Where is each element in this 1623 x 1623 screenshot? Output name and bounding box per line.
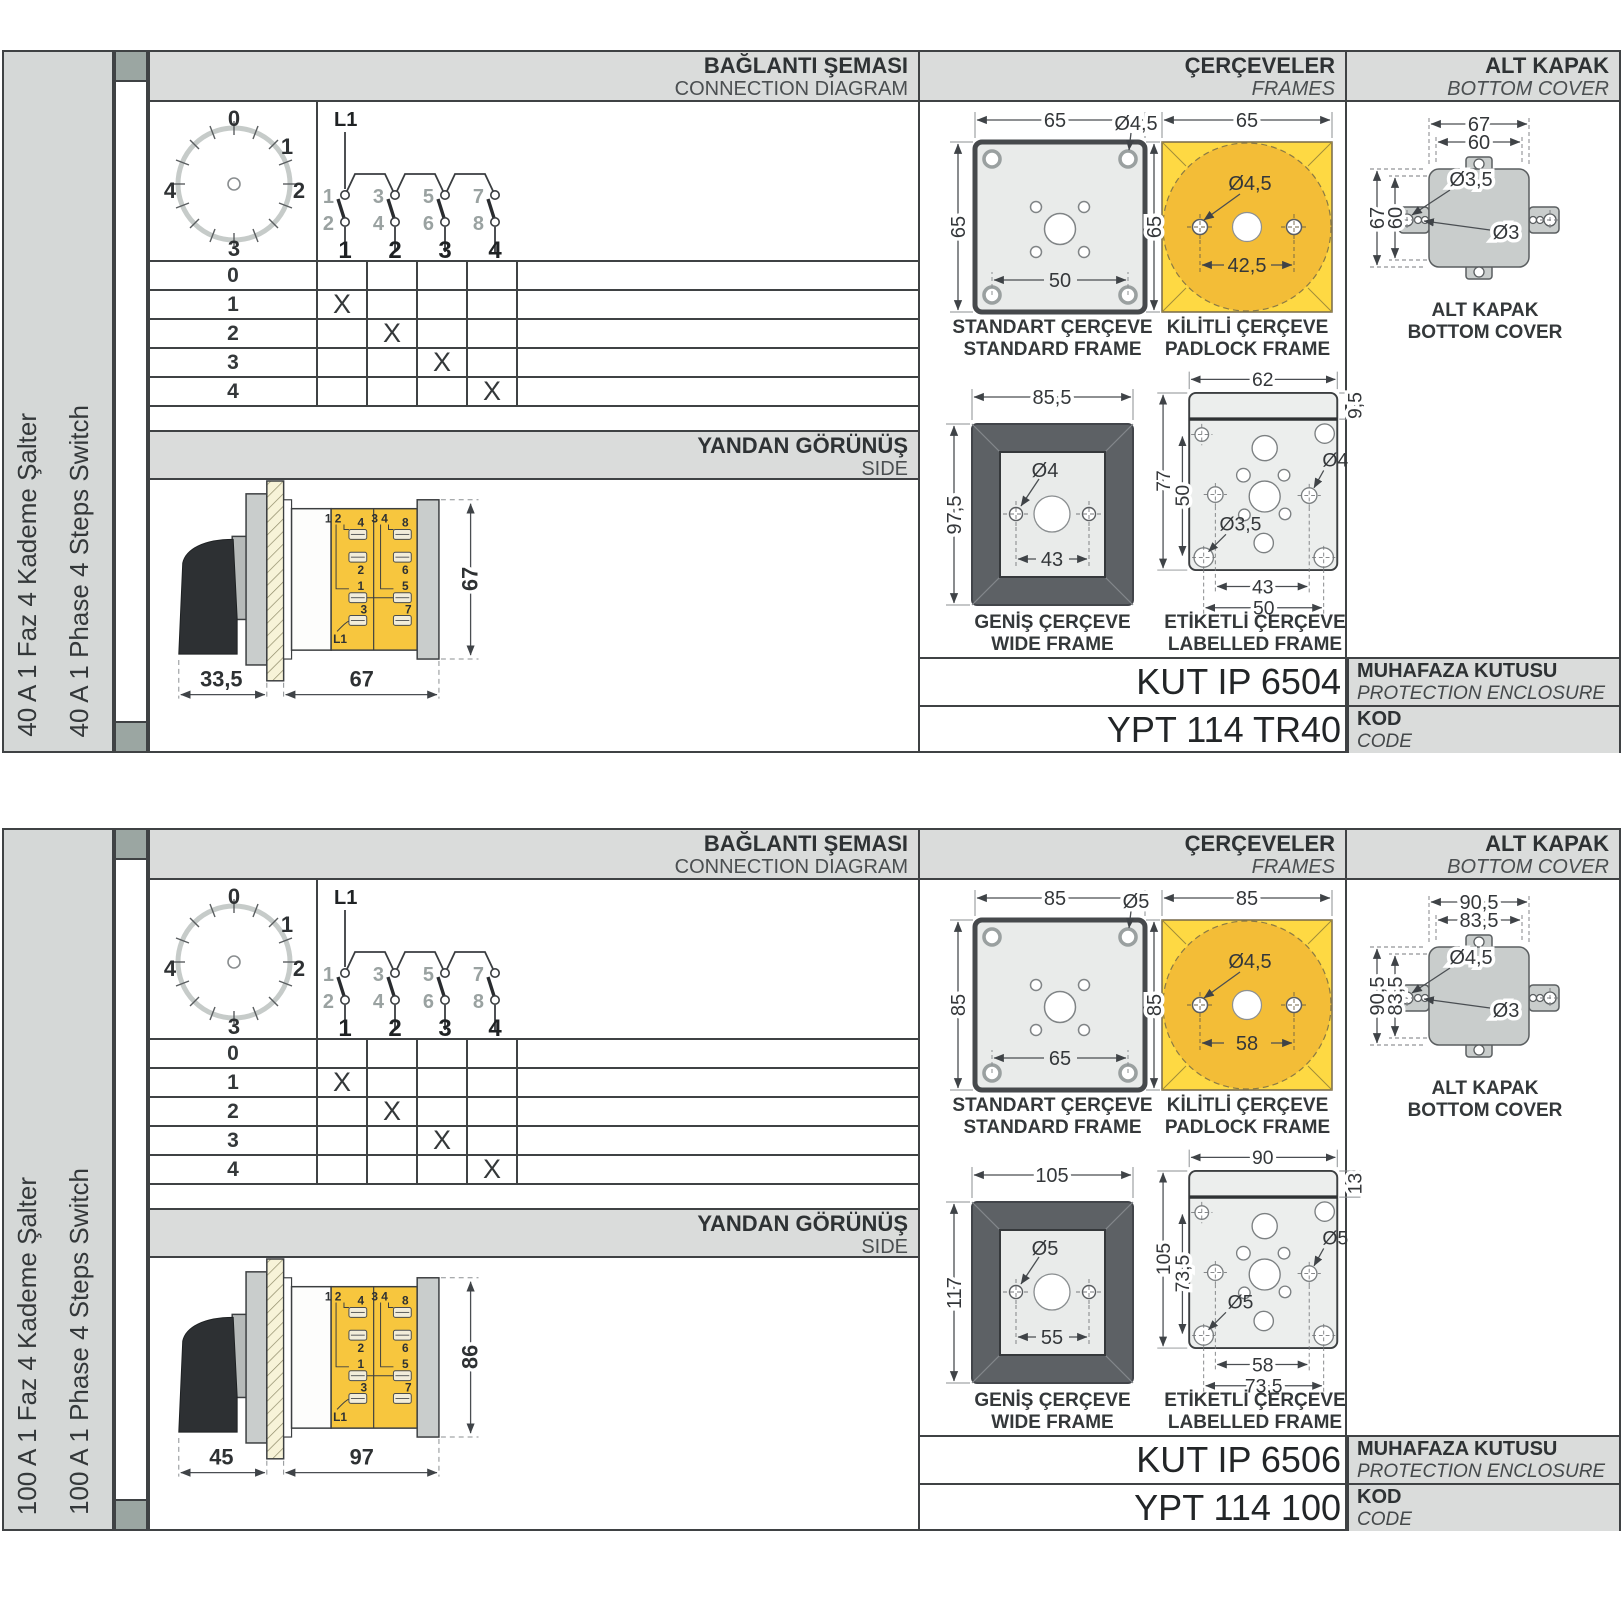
table-cell: X xyxy=(418,1127,468,1156)
terminal-4: 4 xyxy=(488,237,502,260)
table-cell xyxy=(318,349,368,378)
dim-standard-width: 85 xyxy=(1044,888,1066,910)
terminal-5-label: 5 xyxy=(402,579,409,593)
contact-3: 3 xyxy=(373,186,384,208)
table-cell: X xyxy=(318,1069,368,1098)
bottom-cover-label-en: BOTTOM COVER xyxy=(1347,322,1623,344)
table-cell-empty xyxy=(518,1127,920,1156)
dim-labelled-hole-left: Ø3,5 xyxy=(1220,513,1262,535)
table-cell xyxy=(468,291,518,320)
dim-cover-height2: 60 xyxy=(1385,207,1407,229)
terminal-3: 3 xyxy=(438,1015,451,1038)
table-cell xyxy=(318,378,368,407)
dim-labelled-hole-right: Ø4 xyxy=(1322,450,1348,472)
header-side-view: YANDAN GÖRÜNÜŞ SIDE xyxy=(150,1208,920,1258)
dim-body-height: 67 xyxy=(458,567,483,591)
header-connection-en: CONNECTION DIAGRAM xyxy=(150,856,908,878)
dim-labelled-height-inner: 73,5 xyxy=(1172,1255,1194,1293)
table-cell-empty xyxy=(518,1156,920,1185)
dim-labelled-width: 90 xyxy=(1252,1147,1274,1169)
dim-body-height: 86 xyxy=(458,1345,483,1369)
enclosure-label-en: PROTECTION ENCLOSURE xyxy=(1357,683,1619,704)
dim-labelled-bottom-inner: 43 xyxy=(1252,576,1274,598)
contact-1: 1 xyxy=(323,964,334,986)
product-code-row: YPT 114 TR40 KOD CODE xyxy=(920,705,1619,753)
dim-standard-height: 65 xyxy=(948,216,970,238)
contact-5: 5 xyxy=(423,964,434,986)
table-cell-empty xyxy=(518,320,920,349)
product-sidebar: 100 A 1 Faz 4 Kademe Şalter 100 A 1 Phas… xyxy=(2,828,114,1531)
dial-position-4: 4 xyxy=(164,956,177,981)
terminal-1: 1 xyxy=(338,237,351,260)
table-row-label: 2 xyxy=(150,320,318,349)
header-frames-tr: ÇERÇEVELER xyxy=(920,54,1335,78)
dim-padlock-width: 65 xyxy=(1236,110,1258,132)
terminal-3: 3 xyxy=(438,237,451,260)
contact-2: 2 xyxy=(323,991,334,1013)
header-frames-en: FRAMES xyxy=(920,78,1335,100)
table-cell xyxy=(318,1127,368,1156)
header-cover-tr: ALT KAPAK xyxy=(1347,54,1609,78)
dim-wide-height: 117 xyxy=(944,1277,966,1309)
table-cell-empty xyxy=(518,1040,920,1069)
supply-label: L1 xyxy=(334,887,357,909)
table-row-label: 4 xyxy=(150,1156,318,1185)
labelled-frame-drawing: 62 9,5 77 50 Ø4 Ø3,5 43 50 xyxy=(1140,362,1370,662)
dim-wide-height: 97,5 xyxy=(944,496,966,535)
terminal-2: 2 xyxy=(388,1015,401,1038)
dim-wide-inner: 43 xyxy=(1041,549,1063,571)
enclosure-label-tr: MUHAFAZA KUTUSU xyxy=(1357,660,1619,683)
terminal-5-label: 5 xyxy=(402,1357,409,1371)
dim-labelled-width: 62 xyxy=(1252,369,1274,391)
sidebar-strip xyxy=(114,828,148,1531)
table-cell xyxy=(318,262,368,291)
header-side-en: SIDE xyxy=(150,458,908,480)
standard-frame-drawing: 85 Ø5 85 65 xyxy=(940,880,1165,1125)
table-cell xyxy=(368,1069,418,1098)
table-cell: X xyxy=(418,349,468,378)
dim-padlock-width: 85 xyxy=(1236,888,1258,910)
header-frames-tr: ÇERÇEVELER xyxy=(920,832,1335,856)
terminal-6-label: 6 xyxy=(402,563,409,577)
table-cell xyxy=(418,1040,468,1069)
dim-cover-hole1: Ø4,5 xyxy=(1449,947,1492,969)
table-cell xyxy=(318,320,368,349)
table-cell xyxy=(318,1098,368,1127)
dial-position-0: 0 xyxy=(228,884,240,909)
table-row-label: 0 xyxy=(150,262,318,291)
dim-standard-height: 85 xyxy=(948,994,970,1016)
terminal-1-label: 1 xyxy=(357,1357,364,1371)
header-connection-en: CONNECTION DIAGRAM xyxy=(150,78,908,100)
dial-position-3: 3 xyxy=(228,236,240,260)
dim-padlock-hole: Ø4,5 xyxy=(1228,951,1271,973)
table-cell xyxy=(368,378,418,407)
table-cell: X xyxy=(368,320,418,349)
product-name-english: 100 A 1 Phase 4 Steps Switch xyxy=(64,1168,95,1515)
dim-cover-height2: 83,5 xyxy=(1385,977,1407,1016)
catalog-page: 40 A 1 Faz 4 Kademe Şalter 40 A 1 Phase … xyxy=(0,0,1623,1623)
dim-wide-inner: 55 xyxy=(1041,1327,1063,1349)
product-name-turkish: 100 A 1 Faz 4 Kademe Şalter xyxy=(12,1177,43,1515)
contact-5: 5 xyxy=(423,186,434,208)
table-row-label: 4 xyxy=(150,378,318,407)
dim-front-depth: 33,5 xyxy=(200,667,242,692)
contact-2: 2 xyxy=(323,213,334,235)
contact-6: 6 xyxy=(423,991,434,1013)
dim-padlock-height: 65 xyxy=(1144,216,1166,238)
padlock-frame-drawing: 85 85 Ø4,5 58 xyxy=(1140,880,1355,1125)
dial-position-4: 4 xyxy=(164,178,177,203)
header-connection-tr: BAĞLANTI ŞEMASI xyxy=(150,832,908,856)
terminal-2-label: 2 xyxy=(357,1341,364,1355)
table-cell xyxy=(418,262,468,291)
table-cell xyxy=(368,291,418,320)
header-side-tr: YANDAN GÖRÜNÜŞ xyxy=(150,1212,908,1236)
header-connection-diagram: BAĞLANTI ŞEMASI CONNECTION DIAGRAM xyxy=(150,52,920,102)
dim-standard-inner: 65 xyxy=(1049,1048,1071,1070)
product-name-turkish: 40 A 1 Faz 4 Kademe Şalter xyxy=(12,413,43,737)
dim-padlock-height: 85 xyxy=(1144,994,1166,1016)
dim-cover-hole1: Ø3,5 xyxy=(1449,169,1492,191)
table-cell xyxy=(418,1098,468,1127)
dim-labelled-bottom-inner: 58 xyxy=(1252,1354,1274,1376)
table-row-label: 1 xyxy=(150,291,318,320)
table-cell xyxy=(418,291,468,320)
wide-frame-drawing: 105 117 Ø5 55 xyxy=(940,1157,1165,1407)
contact-8: 8 xyxy=(473,991,484,1013)
contact-4: 4 xyxy=(373,991,385,1013)
dial-position-0: 0 xyxy=(228,106,240,131)
dim-padlock-hole: Ø4,5 xyxy=(1228,173,1271,195)
table-cell xyxy=(368,1156,418,1185)
strip-marker-bottom xyxy=(116,721,146,751)
terminal-6-label: 6 xyxy=(402,1341,409,1355)
header-connection-tr: BAĞLANTI ŞEMASI xyxy=(150,54,908,78)
table-cell xyxy=(368,1040,418,1069)
header-bottom-cover: ALT KAPAK BOTTOM COVER xyxy=(1347,830,1619,880)
dim-labelled-bottom-outer: 73,5 xyxy=(1245,1376,1283,1398)
sidebar-strip xyxy=(114,50,148,753)
header-cover-en: BOTTOM COVER xyxy=(1347,856,1609,878)
dim-wide-width: 105 xyxy=(1035,1165,1068,1187)
side-view-drawing: 1 2 3 4 4 2 1 3 8 6 5 7 L1 45 97 86 xyxy=(154,1258,896,1532)
table-cell: X xyxy=(318,291,368,320)
header-side-view: YANDAN GÖRÜNÜŞ SIDE xyxy=(150,430,920,480)
table-row-label: 2 xyxy=(150,1098,318,1127)
wide-frame-label-en: WIDE FRAME xyxy=(940,634,1165,656)
terminal-pair-left: 1 2 xyxy=(325,512,342,526)
terminal-1: 1 xyxy=(338,1015,351,1038)
terminal-1-label: 1 xyxy=(357,579,364,593)
code-label-tr: KOD xyxy=(1357,708,1619,731)
contact-4: 4 xyxy=(373,213,385,235)
connection-schematic: L1 1 3 5 7 2 4 6 8 1 2 3 4 xyxy=(318,880,920,1038)
dim-cover-hole2: Ø3 xyxy=(1493,222,1520,244)
dim-cover-hole2: Ø3 xyxy=(1493,1000,1520,1022)
table-cell xyxy=(368,349,418,378)
table-cell xyxy=(418,1069,468,1098)
table-cell xyxy=(468,320,518,349)
table-cell xyxy=(468,262,518,291)
enclosure-code-label: MUHAFAZA KUTUSU PROTECTION ENCLOSURE xyxy=(1347,1437,1619,1483)
switching-table: 0 1 X 2 X 3 X xyxy=(150,260,920,407)
terminal-3-label: 3 xyxy=(360,603,367,617)
dim-labelled-bottom-outer: 50 xyxy=(1253,598,1275,620)
terminal-2-label: 2 xyxy=(357,563,364,577)
product-code: YPT 114 100 xyxy=(920,1485,1347,1531)
terminal-7-label: 7 xyxy=(405,1381,412,1395)
contact-6: 6 xyxy=(423,213,434,235)
product-sidebar: 40 A 1 Faz 4 Kademe Şalter 40 A 1 Phase … xyxy=(2,50,114,753)
dim-labelled-height-inner: 50 xyxy=(1172,485,1194,507)
terminal-pair-left: 1 2 xyxy=(325,1290,342,1304)
product-section-40a: 40 A 1 Faz 4 Kademe Şalter 40 A 1 Phase … xyxy=(0,50,1623,753)
table-cell xyxy=(318,1156,368,1185)
dim-wide-width: 85,5 xyxy=(1033,387,1072,409)
contact-3: 3 xyxy=(373,964,384,986)
contact-8: 8 xyxy=(473,213,484,235)
table-cell: X xyxy=(468,1156,518,1185)
product-code: YPT 114 TR40 xyxy=(920,707,1347,753)
dial-position-2: 2 xyxy=(293,178,305,203)
header-connection-diagram: BAĞLANTI ŞEMASI CONNECTION DIAGRAM xyxy=(150,830,920,880)
table-cell xyxy=(468,1127,518,1156)
dial-position-1: 1 xyxy=(281,134,293,159)
wide-frame-label-en: WIDE FRAME xyxy=(940,1412,1165,1434)
table-cell xyxy=(368,262,418,291)
bottom-cover-label-en: BOTTOM COVER xyxy=(1347,1100,1623,1122)
product-name-english: 40 A 1 Phase 4 Steps Switch xyxy=(64,405,95,737)
enclosure-code: KUT IP 6504 xyxy=(920,659,1347,705)
dim-standard-inner: 50 xyxy=(1049,270,1071,292)
terminal-8-label: 8 xyxy=(402,1293,409,1307)
enclosure-code-row: KUT IP 6504 MUHAFAZA KUTUSU PROTECTION E… xyxy=(920,657,1619,705)
terminal-4-label: 4 xyxy=(357,1293,364,1307)
supply-label: L1 xyxy=(334,109,357,131)
table-cell xyxy=(418,378,468,407)
header-side-tr: YANDAN GÖRÜNÜŞ xyxy=(150,434,908,458)
dim-cover-width2: 83,5 xyxy=(1460,910,1499,932)
header-bottom-cover: ALT KAPAK BOTTOM COVER xyxy=(1347,52,1619,102)
table-cell-empty xyxy=(518,1098,920,1127)
header-cover-tr: ALT KAPAK xyxy=(1347,832,1609,856)
header-side-en: SIDE xyxy=(150,1236,908,1258)
enclosure-code-label: MUHAFAZA KUTUSU PROTECTION ENCLOSURE xyxy=(1347,659,1619,705)
dim-wide-hole: Ø4 xyxy=(1032,460,1059,482)
product-code-row: YPT 114 100 KOD CODE xyxy=(920,1483,1619,1531)
strip-marker-bottom xyxy=(116,1499,146,1529)
table-cell xyxy=(318,1040,368,1069)
header-cover-en: BOTTOM COVER xyxy=(1347,78,1609,100)
dim-labelled-strip: 13 xyxy=(1344,1173,1366,1195)
table-row-label: 0 xyxy=(150,1040,318,1069)
table-cell-empty xyxy=(518,349,920,378)
terminal-7-label: 7 xyxy=(405,603,412,617)
enclosure-code-row: KUT IP 6506 MUHAFAZA KUTUSU PROTECTION E… xyxy=(920,1435,1619,1483)
table-cell-empty xyxy=(518,291,920,320)
standard-frame-drawing: 65 Ø4,5 65 50 xyxy=(940,102,1165,347)
dial-position-2: 2 xyxy=(293,956,305,981)
dim-front-depth: 45 xyxy=(209,1445,233,1470)
table-cell-empty xyxy=(518,1069,920,1098)
dim-wide-hole: Ø5 xyxy=(1032,1238,1059,1260)
terminal-pair-right: 3 4 xyxy=(371,1290,388,1304)
dim-labelled-strip: 9,5 xyxy=(1344,392,1366,419)
dim-labelled-hole-left: Ø5 xyxy=(1228,1291,1254,1313)
product-code-label: KOD CODE xyxy=(1347,707,1619,753)
code-label-en: CODE xyxy=(1357,1509,1619,1530)
table-row-label: 3 xyxy=(150,1127,318,1156)
contact-7: 7 xyxy=(473,964,484,986)
bottom-cover-drawing: 90,5 83,5 90,5 83,5 Ø4,5 Ø3 xyxy=(1347,880,1623,1095)
product-section-100a: 100 A 1 Faz 4 Kademe Şalter 100 A 1 Phas… xyxy=(0,828,1623,1531)
table-cell-empty xyxy=(518,378,920,407)
table-cell: X xyxy=(468,378,518,407)
table-cell xyxy=(368,1127,418,1156)
terminal-4: 4 xyxy=(488,1015,502,1038)
switching-table: 0 1 X 2 X 3 X xyxy=(150,1038,920,1185)
dial-position-1: 1 xyxy=(281,912,293,937)
dial-position-3: 3 xyxy=(228,1014,240,1038)
side-view-drawing: 1 2 3 4 4 2 1 3 8 6 5 7 L1 33,5 67 67 xyxy=(154,480,896,754)
dim-body-depth: 97 xyxy=(350,1445,374,1470)
table-row-label: 3 xyxy=(150,349,318,378)
labelled-frame-drawing: 90 13 105 73,5 Ø5 Ø5 58 73,5 xyxy=(1140,1140,1370,1440)
dim-padlock-inner: 42,5 xyxy=(1228,255,1267,277)
rotary-dial-drawing: 0 1 2 3 4 xyxy=(150,102,318,260)
dim-cover-width2: 60 xyxy=(1468,132,1490,154)
strip-marker-top xyxy=(116,830,146,860)
terminal-8-label: 8 xyxy=(402,515,409,529)
terminal-3-label: 3 xyxy=(360,1381,367,1395)
dim-labelled-hole-right: Ø5 xyxy=(1322,1228,1348,1250)
code-label-en: CODE xyxy=(1357,731,1619,752)
code-label-tr: KOD xyxy=(1357,1486,1619,1509)
table-cell xyxy=(468,1069,518,1098)
table-cell xyxy=(418,1156,468,1185)
enclosure-label-tr: MUHAFAZA KUTUSU xyxy=(1357,1438,1619,1461)
table-cell xyxy=(468,1040,518,1069)
padlock-frame-drawing: 65 65 Ø4,5 42,5 xyxy=(1140,102,1355,347)
product-code-label: KOD CODE xyxy=(1347,1485,1619,1531)
terminal-pair-right: 3 4 xyxy=(371,512,388,526)
enclosure-label-en: PROTECTION ENCLOSURE xyxy=(1357,1461,1619,1482)
l1-label: L1 xyxy=(333,1410,347,1424)
dim-body-depth: 67 xyxy=(350,667,374,692)
l1-label: L1 xyxy=(333,632,347,646)
strip-marker-top xyxy=(116,52,146,82)
table-cell xyxy=(468,1098,518,1127)
wide-frame-drawing: 85,5 97,5 Ø4 43 xyxy=(940,379,1165,629)
dim-padlock-inner: 58 xyxy=(1236,1033,1258,1055)
table-cell xyxy=(418,320,468,349)
terminal-4-label: 4 xyxy=(357,515,364,529)
contact-1: 1 xyxy=(323,186,334,208)
bottom-cover-drawing: 67 60 67 60 Ø3,5 Ø3 xyxy=(1347,102,1623,317)
header-frames-en: FRAMES xyxy=(920,856,1335,878)
table-row-label: 1 xyxy=(150,1069,318,1098)
section-content: BAĞLANTI ŞEMASI CONNECTION DIAGRAM ÇERÇE… xyxy=(148,828,1621,1531)
rotary-dial-drawing: 0 1 2 3 4 xyxy=(150,880,318,1038)
enclosure-code: KUT IP 6506 xyxy=(920,1437,1347,1483)
contact-7: 7 xyxy=(473,186,484,208)
connection-schematic: L1 1 3 5 7 2 4 6 8 1 2 3 4 xyxy=(318,102,920,260)
table-cell: X xyxy=(368,1098,418,1127)
section-content: BAĞLANTI ŞEMASI CONNECTION DIAGRAM ÇERÇE… xyxy=(148,50,1621,753)
table-cell-empty xyxy=(518,262,920,291)
header-frames: ÇERÇEVELER FRAMES xyxy=(920,52,1347,102)
table-cell xyxy=(468,349,518,378)
dim-standard-width: 65 xyxy=(1044,110,1066,132)
header-frames: ÇERÇEVELER FRAMES xyxy=(920,830,1347,880)
terminal-2: 2 xyxy=(388,237,401,260)
